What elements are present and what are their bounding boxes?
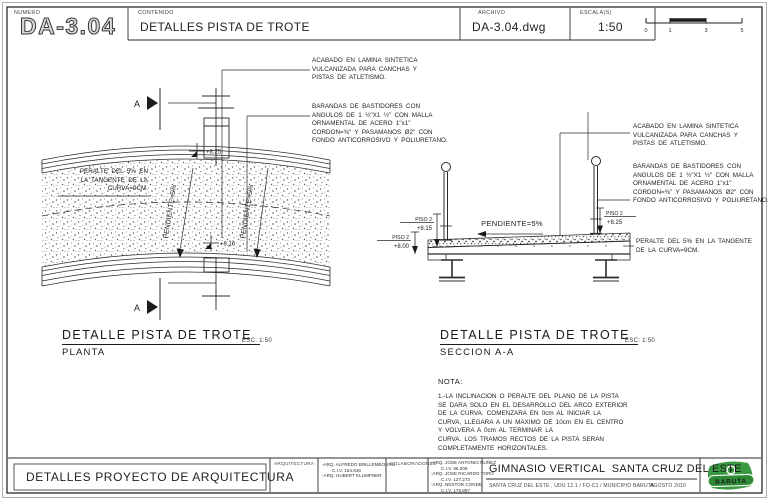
- plan-note-barandas: BARANDAS DE BASTIDORES CON ANGULOS DE 1 …: [312, 103, 477, 146]
- escala-label: ESCALA(S): [580, 10, 612, 16]
- plan-subtitle: PLANTA: [62, 347, 260, 358]
- scalebar-tick-3: 3: [704, 28, 707, 34]
- section-marker-letter-top: A: [134, 99, 140, 109]
- nota-text: 1.-LA INCLINACION O PERALTE DEL PLANO DE…: [438, 393, 673, 453]
- graphic-scale-bar: 0 1 3 5: [644, 18, 743, 34]
- arquitectura-names: -ARQ. ALFREDO BRILLEMBOURG C.I.V. 154.84…: [322, 462, 395, 479]
- section-note-peralte: PERALTE DEL 5% EN LA TANGENTE DE LA CURV…: [636, 238, 769, 255]
- scale-value: 1:50: [598, 20, 623, 34]
- level-800-name: PISO 2: [392, 235, 409, 241]
- plan-elev-bottom-value: +8.16: [220, 242, 236, 248]
- level-825-name: PISO 2: [606, 211, 623, 217]
- project-title: GIMNASIO VERTICAL SANTA CRUZ DEL ESTE: [489, 463, 742, 475]
- arquitectura-label: ARQUITECTURA: [274, 462, 314, 467]
- section-slope: PENDIENTE=5%: [477, 219, 543, 237]
- plan-elev-top-value: +8.25: [206, 150, 222, 156]
- plan-title-block: DETALLE PISTA DE TROTE PLANTA: [62, 326, 260, 358]
- section-marker-letter-bottom: A: [134, 303, 140, 313]
- plan-view: A A: [42, 70, 330, 320]
- level-marker-800: PISO 2 +8.00: [377, 232, 419, 254]
- plan-post-bottom: [202, 258, 230, 310]
- plan-note-peralte: PERALTE DEL 5% EN LA TANGENTE DE LA CURV…: [32, 168, 148, 194]
- handrail-pipe-section-left: [442, 163, 451, 172]
- scalebar-tick-0: 0: [644, 28, 647, 34]
- level-800-value: +8.00: [394, 244, 410, 250]
- file-name: DA-3.04.dwg: [472, 20, 546, 34]
- scalebar-tick-1: 1: [668, 28, 671, 34]
- section-slope-label: PENDIENTE=5%: [481, 219, 543, 228]
- section-subtitle: SECCION A-A: [440, 347, 638, 358]
- slab-edge-left: [428, 254, 446, 260]
- section-scale-note: ESC: 1:50: [625, 338, 655, 344]
- plan-elevation-top: +8.25: [189, 143, 222, 159]
- project-date: AGOSTO 2010: [650, 483, 686, 489]
- sheet-content-title: DETALLES PISTA DE TROTE: [140, 20, 310, 34]
- sheet-series-title: DETALLES PROYECTO DE ARQUITECTURA: [26, 470, 294, 484]
- nota-label: NOTA:: [438, 377, 673, 386]
- plan-note-acabado: ACABADO EN LAMINA SINTETICA VULCANIZADA …: [312, 57, 467, 83]
- level-815-name: PISO 2: [415, 217, 432, 223]
- section-steel-supports: [439, 260, 619, 281]
- project-location: SANTA CRUZ DEL ESTE , UDU 12.1 / FO-C1 /…: [489, 483, 654, 489]
- section-note-barandas: BARANDAS DE BASTIDORES CON ANGULOS DE 1 …: [633, 163, 769, 206]
- scalebar-tick-5: 5: [740, 28, 743, 34]
- nota-block: NOTA: 1.-LA INCLINACION O PERALTE DEL PL…: [438, 377, 673, 453]
- slab-edge-right: [612, 254, 630, 260]
- section-title: DETALLE PISTA DE TROTE: [440, 328, 638, 345]
- plan-scale-note: ESC: 1:50: [242, 338, 272, 344]
- archivo-label: ARCHIVO: [478, 10, 505, 16]
- logo-text: BARUTA: [715, 478, 747, 486]
- level-marker-825: PISO 2 +8.25: [596, 208, 636, 234]
- level-815-value: +8.15: [417, 226, 433, 232]
- section-note-acabado: ACABADO EN LAMINA SINTETICA VULCANIZADA …: [633, 123, 768, 149]
- colaboradores-names: -ARQ. JOSE ANTONIO NUÑEZ C.I.V. 96.206 -…: [431, 460, 496, 494]
- colaboradores-label: COLABORADORES: [390, 462, 436, 467]
- drawing-sheet: 0 1 3 5: [0, 0, 769, 500]
- level-825-value: +8.25: [607, 220, 623, 226]
- handrail-pipe-section-right: [592, 157, 601, 166]
- contenido-label: CONTENIDO: [138, 10, 174, 16]
- plan-title: DETALLE PISTA DE TROTE: [62, 328, 260, 345]
- sheet-number: DA-3.04: [20, 13, 116, 40]
- section-title-block: DETALLE PISTA DE TROTE SECCION A-A: [440, 326, 638, 358]
